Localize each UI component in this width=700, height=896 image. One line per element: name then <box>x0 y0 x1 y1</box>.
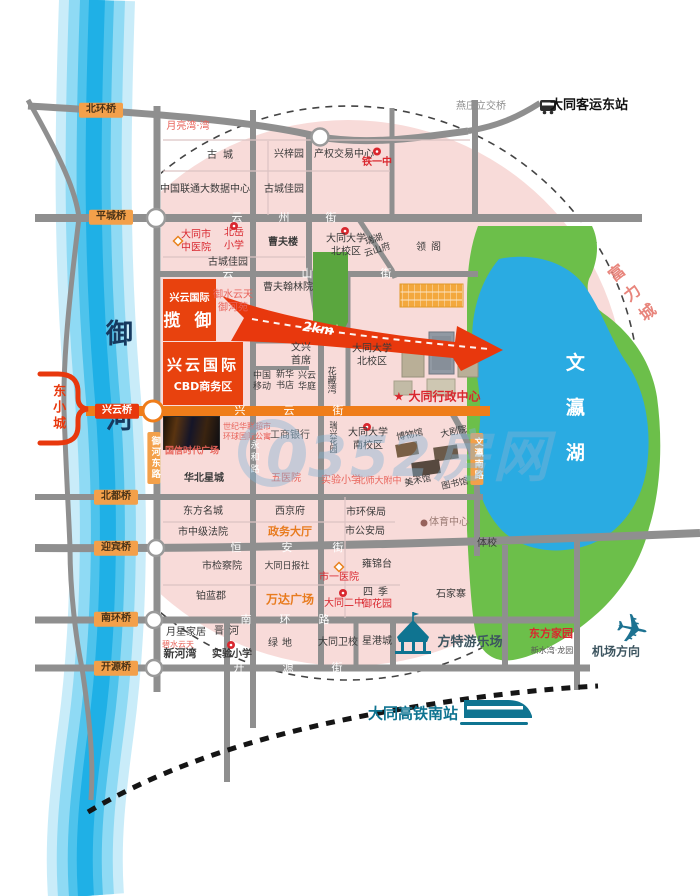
lingge-label: 领阁 <box>416 242 446 255</box>
art-gallery-label: 美术馆 <box>404 474 433 491</box>
xinshuiwan-label: 新水湾·龙园 <box>531 646 574 656</box>
fifth-hospital-label: 五医院 <box>271 473 301 486</box>
road-wenying-south: 文瀛南路 <box>470 433 483 485</box>
icbc-label: 工商银行 <box>270 430 310 443</box>
lvdi-label: 绿地 <box>268 638 296 651</box>
yuhe-river-label: 御河 <box>99 319 133 489</box>
health-school-label: 大同卫校 <box>318 637 358 650</box>
dtu-north-campus2-label: 大同大学 北校区 <box>352 344 392 369</box>
bolanjun-label: 铂蓝郡 <box>196 591 226 604</box>
jinhe-label: 晋河 <box>214 626 244 639</box>
wanda-plaza-label: 万达广场 <box>266 593 314 608</box>
zhengwu-hall-label: 政务大厅 <box>268 525 312 539</box>
unicom-datacenter-label: 中国联通大数据中心 <box>160 184 250 197</box>
beishida-label: 北师大附中 <box>356 476 401 487</box>
bridge-beidu: 北都桥 <box>94 490 138 505</box>
yanzhuang-interchange-label: 燕庄立交桥 <box>456 101 506 114</box>
east-bus-station-label: 大同客运东站 <box>550 98 628 114</box>
guchengjiayuan2-label: 古城佳园 <box>208 257 248 270</box>
bishuiyuntian-label: 碧水云天 <box>162 640 194 650</box>
theater-label: 大剧院 <box>440 425 469 442</box>
police-label: 市公安局 <box>345 526 385 539</box>
huabei-xingcheng-label: 华北星城 <box>184 473 224 486</box>
caofulou-label: 曹夫楼 <box>268 237 298 250</box>
dongxiaocheng-label: 东小城 <box>49 384 65 432</box>
xingziyuan-label: 兴梓园 <box>274 149 304 162</box>
shiyan-primary-label: 实验小学 <box>321 475 361 488</box>
tieyizhong-label: 铁一中 <box>362 157 392 170</box>
yuhuayuan-label: 御花园 <box>362 599 392 612</box>
beiyue-primary-label: 北岳 小学 <box>224 228 244 253</box>
bridge-nanhuan: 南环桥 <box>94 612 138 627</box>
bridge-beihuan: 北环桥 <box>79 103 123 118</box>
bridge-kaiyuan: 开源桥 <box>94 661 138 676</box>
dongfang-jiayuan-label: 东方家园 <box>529 627 573 641</box>
guoxin-plaza-label: 国信时代广场 <box>165 446 219 457</box>
xinhua-bookstore-label: 新华 书店 <box>276 370 294 393</box>
bridge-pingcheng: 平城桥 <box>89 210 133 225</box>
xinggangcheng-label: 星港城 <box>362 636 392 649</box>
hsr-south-station-label: 大同高铁南站 <box>368 705 458 724</box>
xinhewan-label: 新河湾 <box>164 647 197 661</box>
road-yonghe: 永和路 <box>247 440 258 476</box>
fulicheng-label: 富力城 <box>602 261 664 332</box>
caofuhanlin-label: 曹夫翰林院 <box>263 282 313 295</box>
dtu-north-campus-label: 大同大学 北校区 <box>326 234 366 259</box>
library-label: 图书馆 <box>441 477 470 494</box>
street-nanhuan: 南环路 <box>241 613 358 627</box>
dongfang-mingcheng-label: 东方名城 <box>183 506 223 519</box>
wenxing-label: 文兴 首席 <box>291 343 311 368</box>
hualian-label: 世纪华联超市 环球国际公寓 <box>223 422 271 442</box>
siji-label: 四季 <box>363 587 393 600</box>
yushuiyuntian-label: 御水云天 御河苑 <box>213 290 253 315</box>
street-yunzhou: 云州街 <box>232 211 373 225</box>
shiyan-primary2-label: 实验小学 <box>212 649 252 662</box>
admin-center-label: ★ 大同行政中心 <box>394 390 481 405</box>
map-labels-layer: 燕庄立交桥大同客运东站月亮湾·湾古城兴梓园产权交易中心铁一中中国联通大数据中心古… <box>0 0 700 896</box>
xijingfu-label: 西京府 <box>275 506 305 519</box>
museum-label: 博物馆 <box>396 428 425 445</box>
yueliangwan-label: 月亮湾·湾 <box>166 121 209 134</box>
court-label: 市中级法院 <box>178 527 228 540</box>
no2-middle-school-label: 大同二中 <box>324 598 364 611</box>
first-hospital-label: 市一医院 <box>319 572 359 585</box>
shijiazhai-label: 石家寨 <box>436 589 466 602</box>
china-mobile-label: 中国 移动 <box>253 371 271 394</box>
ruihu-yunshanfu-label: 瑞湖 云山府 <box>360 231 393 261</box>
yongjintai-label: 雍锦台 <box>362 559 392 572</box>
km-label: 2km <box>301 320 334 340</box>
city-tcm-hospital-label: 大同市 中医院 <box>181 230 211 255</box>
daily-press-label: 大同日报社 <box>264 561 309 572</box>
street-hengan: 恒安街 <box>231 541 384 555</box>
bridge-yingbin: 迎宾桥 <box>94 541 138 556</box>
street-xingyun: 兴云街 <box>235 404 382 418</box>
yuexing-home-label: 月星家居 <box>166 627 206 640</box>
xingyun-huating-label: 兴云 华庭 <box>298 371 316 394</box>
procuratorate-label: 市检察院 <box>202 561 242 574</box>
road-yuhe-east: 御河东路 <box>147 432 160 484</box>
airport-direction-label: 机场方向 <box>592 645 640 660</box>
map-canvas: 兴云国际 揽 御 兴云国际 CBD商务区 ✈ 燕庄立交桥大同客运东站月亮湾·湾古… <box>0 0 700 896</box>
sports-school-label: 体校 <box>477 538 497 551</box>
epa-label: 市环保局 <box>346 507 386 520</box>
bridge-xingyun: 兴云桥 <box>95 404 139 419</box>
fangte-park-label: 方特游乐场 <box>437 635 502 651</box>
street-kaiyuan: 开源街 <box>234 661 381 675</box>
wenyinghu-lake-label: 文瀛湖 <box>561 353 585 488</box>
sports-center-label: 体育中心 <box>429 517 469 530</box>
property-exchange-label: 产权交易中心 <box>314 149 374 162</box>
street-yunshan: 云山街 <box>223 267 460 281</box>
gucheng-label: 古城 <box>207 150 239 163</box>
huacangwan-label: 花藏湾 <box>324 367 335 394</box>
guchengjiayuan-label: 古城佳园 <box>264 184 304 197</box>
ruixing-garden-label: 瑞兴花园 <box>328 421 338 453</box>
dtu-south-campus-label: 大同大学 南校区 <box>348 428 388 453</box>
